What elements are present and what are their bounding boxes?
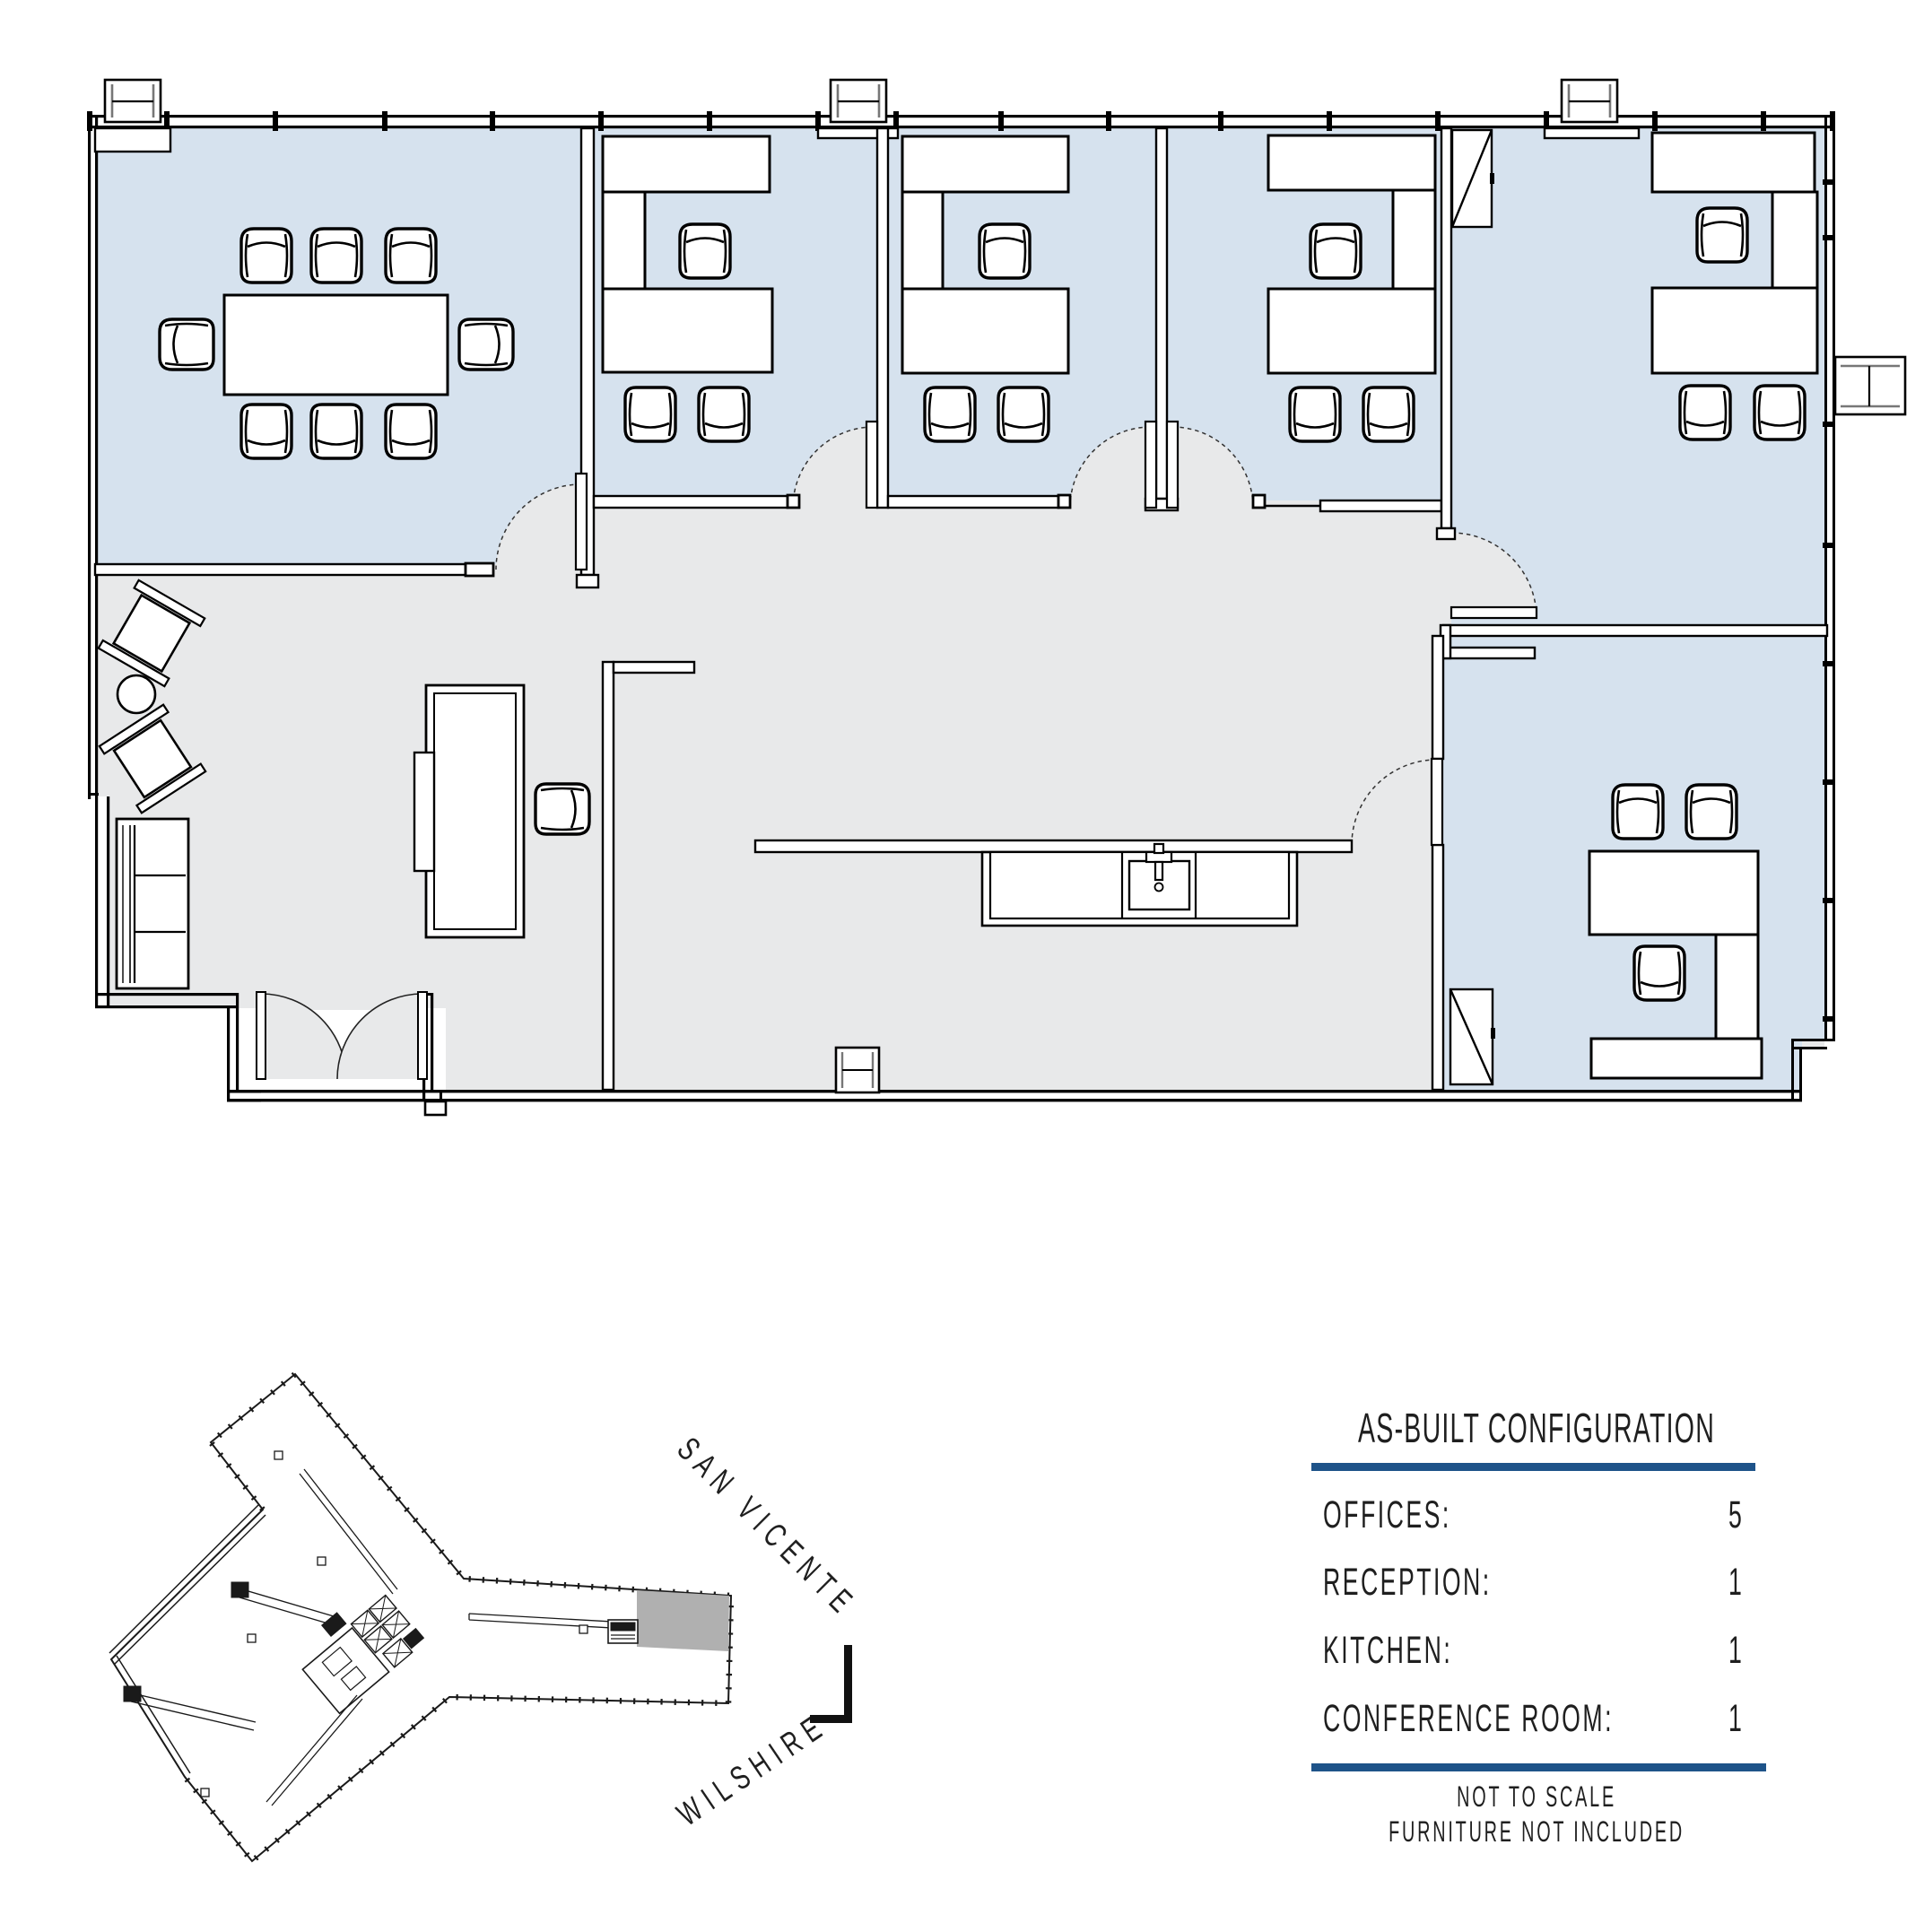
svg-text:WILSHIRE: WILSHIRE	[670, 1706, 834, 1833]
svg-text:1: 1	[1728, 1561, 1742, 1604]
svg-text:FURNITURE NOT INCLUDED: FURNITURE NOT INCLUDED	[1389, 1815, 1685, 1848]
svg-text:CONFERENCE ROOM:: CONFERENCE ROOM:	[1323, 1697, 1614, 1740]
svg-text:1: 1	[1728, 1697, 1742, 1740]
svg-text:NOT TO SCALE: NOT TO SCALE	[1457, 1780, 1616, 1813]
svg-text:KITCHEN:: KITCHEN:	[1323, 1629, 1452, 1672]
svg-text:AS-BUILT CONFIGURATION: AS-BUILT CONFIGURATION	[1358, 1405, 1715, 1452]
svg-text:5: 5	[1728, 1493, 1742, 1536]
svg-text:1: 1	[1728, 1629, 1742, 1672]
svg-text:RECEPTION:: RECEPTION:	[1323, 1561, 1492, 1604]
svg-text:OFFICES:: OFFICES:	[1323, 1493, 1451, 1536]
